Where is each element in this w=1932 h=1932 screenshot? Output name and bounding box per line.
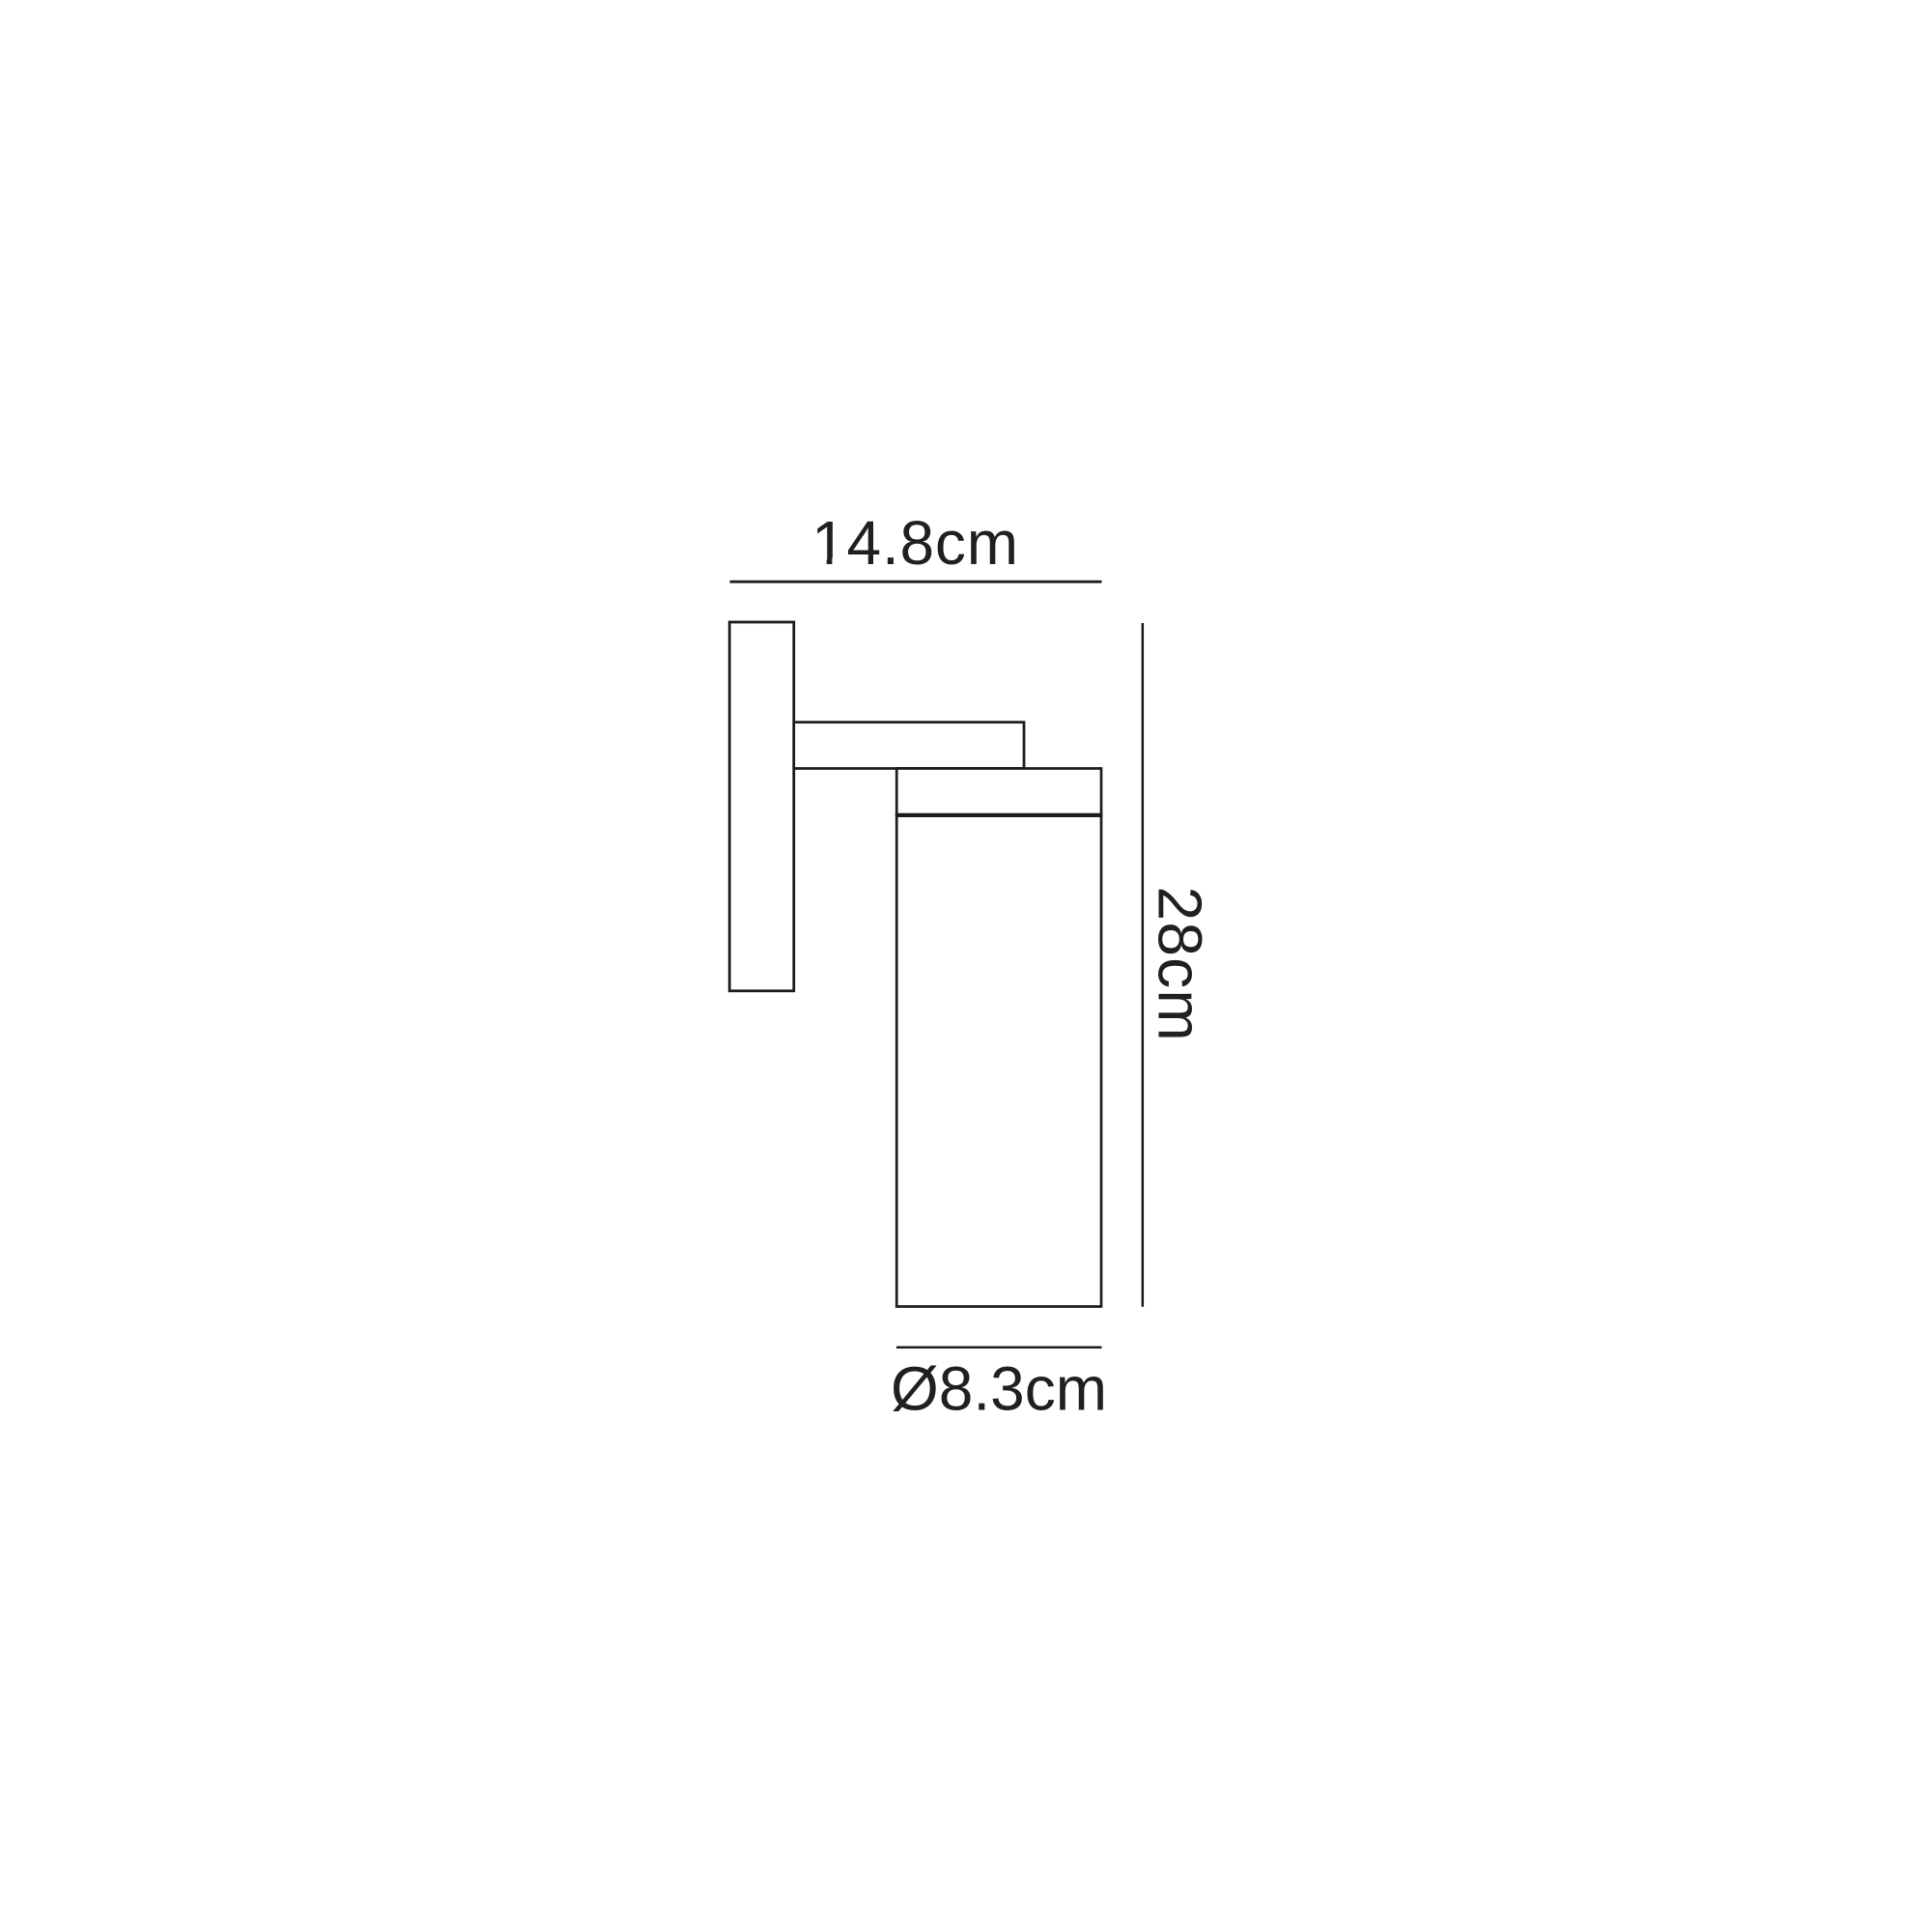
svg-text:28cm: 28cm	[1146, 887, 1215, 1042]
svg-text:14.8cm: 14.8cm	[811, 508, 1019, 578]
svg-text:Ø8.3cm: Ø8.3cm	[891, 1354, 1107, 1424]
